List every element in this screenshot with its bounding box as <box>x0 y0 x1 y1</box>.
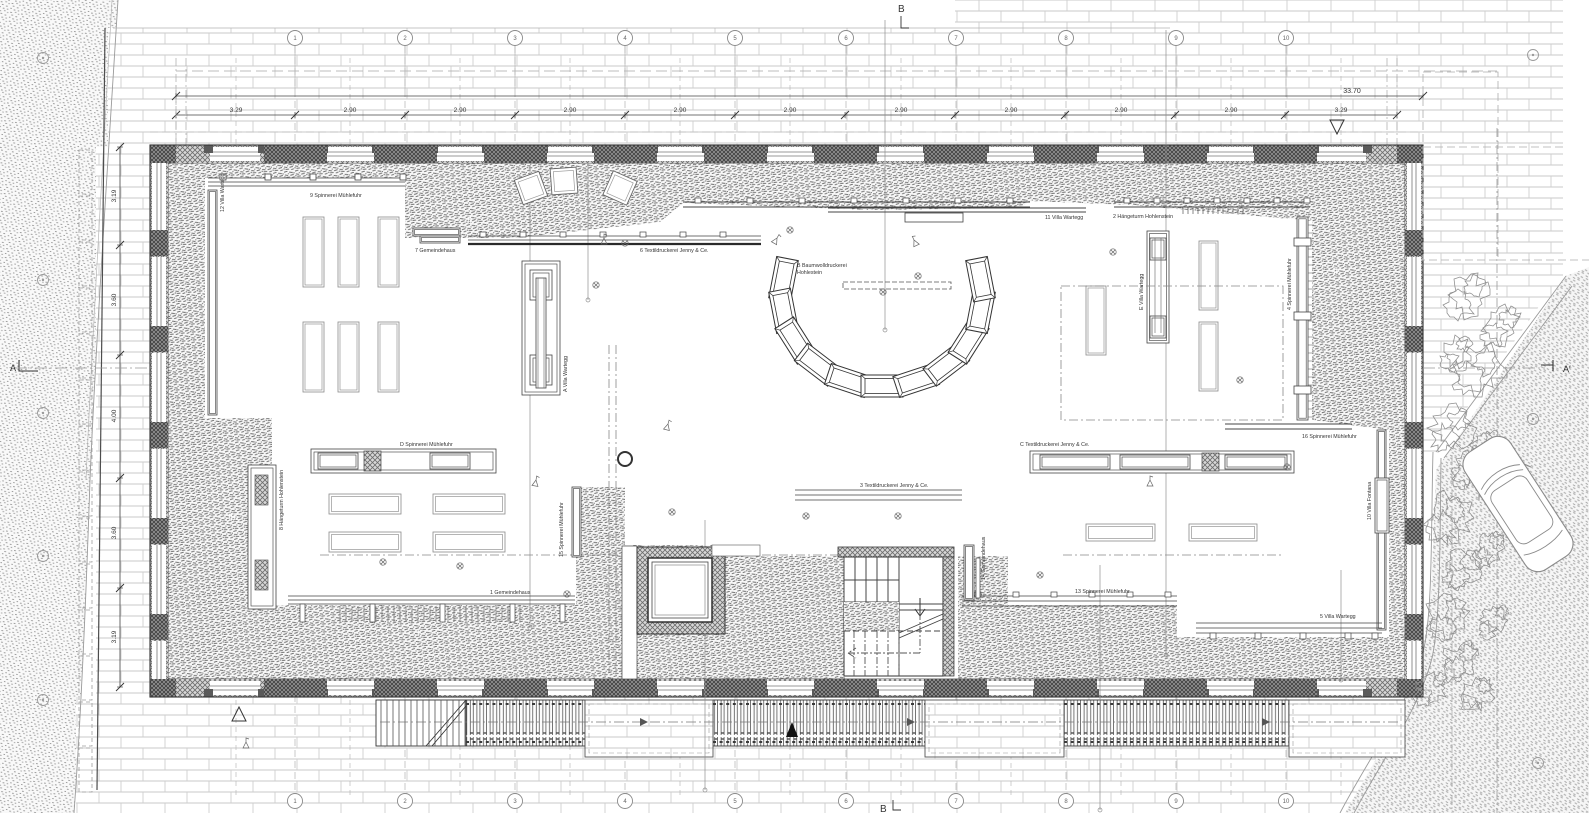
svg-text:3.29: 3.29 <box>1335 107 1348 114</box>
svg-text:A′: A′ <box>1563 364 1571 374</box>
svg-text:2.90: 2.90 <box>784 107 797 114</box>
svg-text:10: 10 <box>1283 36 1290 42</box>
svg-text:I.: I. <box>417 628 422 638</box>
svg-text:15 Spinnerei Mühlefuhr: 15 Spinnerei Mühlefuhr <box>559 502 565 557</box>
svg-text:2.90: 2.90 <box>674 107 687 114</box>
svg-text:3.60: 3.60 <box>111 293 118 306</box>
svg-text:D Spinnerei Mühlefuhr: D Spinnerei Mühlefuhr <box>400 442 453 448</box>
svg-text:B: B <box>898 4 905 15</box>
svg-text:2.90: 2.90 <box>1115 107 1128 114</box>
svg-text:4 Spinnerei Mühlefuhr: 4 Spinnerei Mühlefuhr <box>1287 258 1293 310</box>
svg-text:B: B <box>880 804 887 813</box>
svg-text:14 Gemeindehaus: 14 Gemeindehaus <box>981 536 987 580</box>
svg-text:Hohlestein: Hohlestein <box>797 270 822 276</box>
svg-text:B Baumwolldruckerei: B Baumwolldruckerei <box>797 263 847 269</box>
svg-text:10 Villa Fontana: 10 Villa Fontana <box>1367 482 1373 520</box>
svg-text:3 Textildruckerei Jenny & Ce.: 3 Textildruckerei Jenny & Ce. <box>860 483 929 489</box>
svg-text:II.: II. <box>467 215 475 225</box>
svg-text:6 Textildruckerei Jenny & Ce.: 6 Textildruckerei Jenny & Ce. <box>640 248 709 254</box>
svg-text:2.90: 2.90 <box>1225 107 1238 114</box>
svg-text:A Villa Wartegg: A Villa Wartegg <box>563 356 569 392</box>
svg-text:E Villa Wartegg: E Villa Wartegg <box>1139 274 1145 310</box>
svg-text:8 Hängeturm Hohlenstein: 8 Hängeturm Hohlenstein <box>279 470 285 530</box>
svg-text:2.90: 2.90 <box>454 107 467 114</box>
svg-text:I.: I. <box>940 510 945 520</box>
svg-text:II.: II. <box>1333 266 1341 276</box>
svg-text:2.90: 2.90 <box>344 107 357 114</box>
svg-text:10: 10 <box>1283 799 1290 805</box>
svg-text:13 Spinnerei Mühlefuhr: 13 Spinnerei Mühlefuhr <box>1075 589 1130 595</box>
svg-text:5 Villa Wartegg: 5 Villa Wartegg <box>1320 614 1356 620</box>
svg-text:9 Spinnerei Mühlefuhr: 9 Spinnerei Mühlefuhr <box>310 193 362 199</box>
svg-text:33.70: 33.70 <box>1343 88 1361 95</box>
svg-text:2 Hängeturm Hohlenstein: 2 Hängeturm Hohlenstein <box>1113 214 1173 220</box>
svg-text:2.90: 2.90 <box>1005 107 1018 114</box>
svg-text:2.90: 2.90 <box>564 107 577 114</box>
svg-text:3.19: 3.19 <box>111 630 118 643</box>
svg-text:11 Villa Wartegg: 11 Villa Wartegg <box>1045 215 1083 221</box>
svg-text:1 Gemeindehaus: 1 Gemeindehaus <box>490 590 531 596</box>
svg-text:12 Villa Wartegg: 12 Villa Wartegg <box>220 173 226 212</box>
svg-text:2.90: 2.90 <box>895 107 908 114</box>
svg-text:4.00: 4.00 <box>111 409 118 422</box>
svg-text:III.: III. <box>228 512 238 522</box>
svg-text:3.60: 3.60 <box>111 526 118 539</box>
svg-text:3.29: 3.29 <box>230 107 243 114</box>
svg-text:C Textildruckerei Jenny & Ce.: C Textildruckerei Jenny & Ce. <box>1020 442 1089 448</box>
svg-text:7 Gemeindehaus: 7 Gemeindehaus <box>415 248 456 254</box>
svg-text:3.19: 3.19 <box>111 189 118 202</box>
svg-text:16 Spinnerei Mühlefuhr: 16 Spinnerei Mühlefuhr <box>1302 434 1357 440</box>
